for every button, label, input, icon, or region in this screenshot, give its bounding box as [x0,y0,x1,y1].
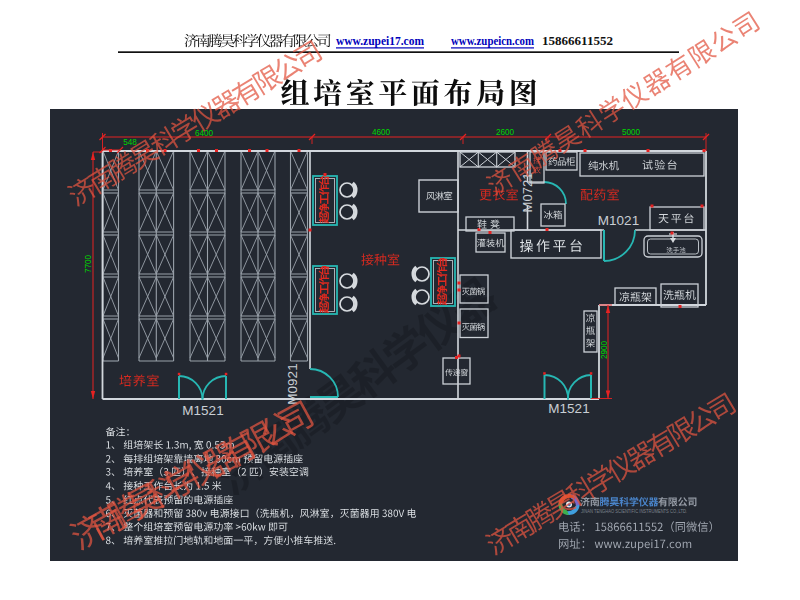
svg-text:JINAN TENGHAO SCIENTIFIC INSTR: JINAN TENGHAO SCIENTIFIC INSTRUMENTS CO.… [581,508,687,514]
svg-text:M1521: M1521 [182,403,223,418]
svg-text:2600: 2600 [496,128,515,137]
svg-text:www.zupei17.com: www.zupei17.com [336,33,425,48]
svg-text:www.zupeicn.com: www.zupeicn.com [451,33,535,48]
svg-text:M0721: M0721 [520,173,535,213]
svg-text:M1021: M1021 [598,213,639,228]
svg-text:2900: 2900 [600,340,609,359]
svg-text:548: 548 [123,138,137,147]
svg-text:4600: 4600 [372,128,391,137]
svg-text:5000: 5000 [622,128,641,137]
svg-text:M1521: M1521 [548,401,589,416]
svg-text:15866611552: 15866611552 [542,33,613,48]
svg-text:M0921: M0921 [285,363,300,404]
svg-text:7700: 7700 [84,254,93,273]
